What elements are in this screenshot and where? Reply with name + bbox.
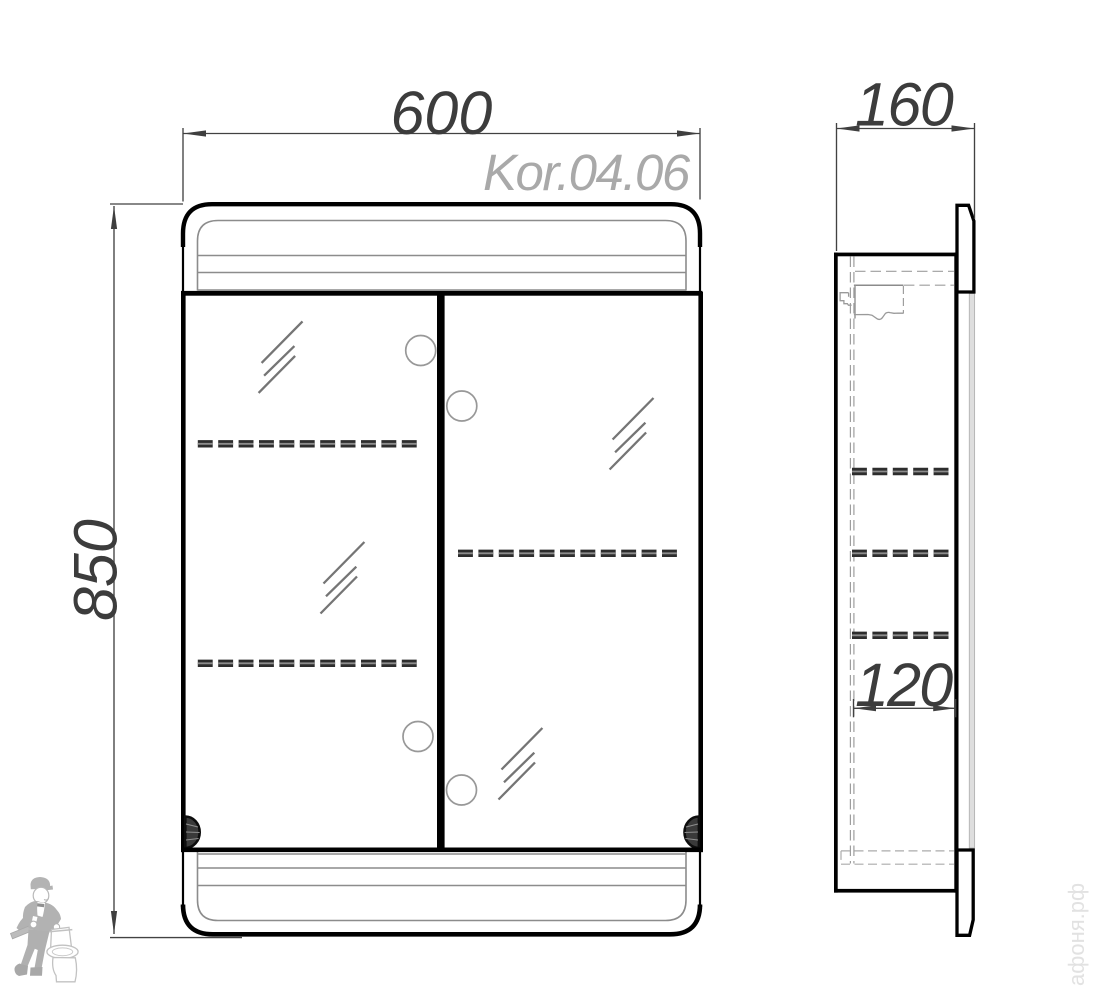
svg-text:Kor.04.06: Kor.04.06	[483, 144, 691, 201]
svg-text:850: 850	[62, 519, 130, 621]
svg-text:160: 160	[855, 71, 954, 139]
svg-text:120: 120	[855, 651, 953, 719]
svg-text:афоня.рф: афоня.рф	[1064, 883, 1089, 986]
svg-text:600: 600	[391, 79, 493, 147]
